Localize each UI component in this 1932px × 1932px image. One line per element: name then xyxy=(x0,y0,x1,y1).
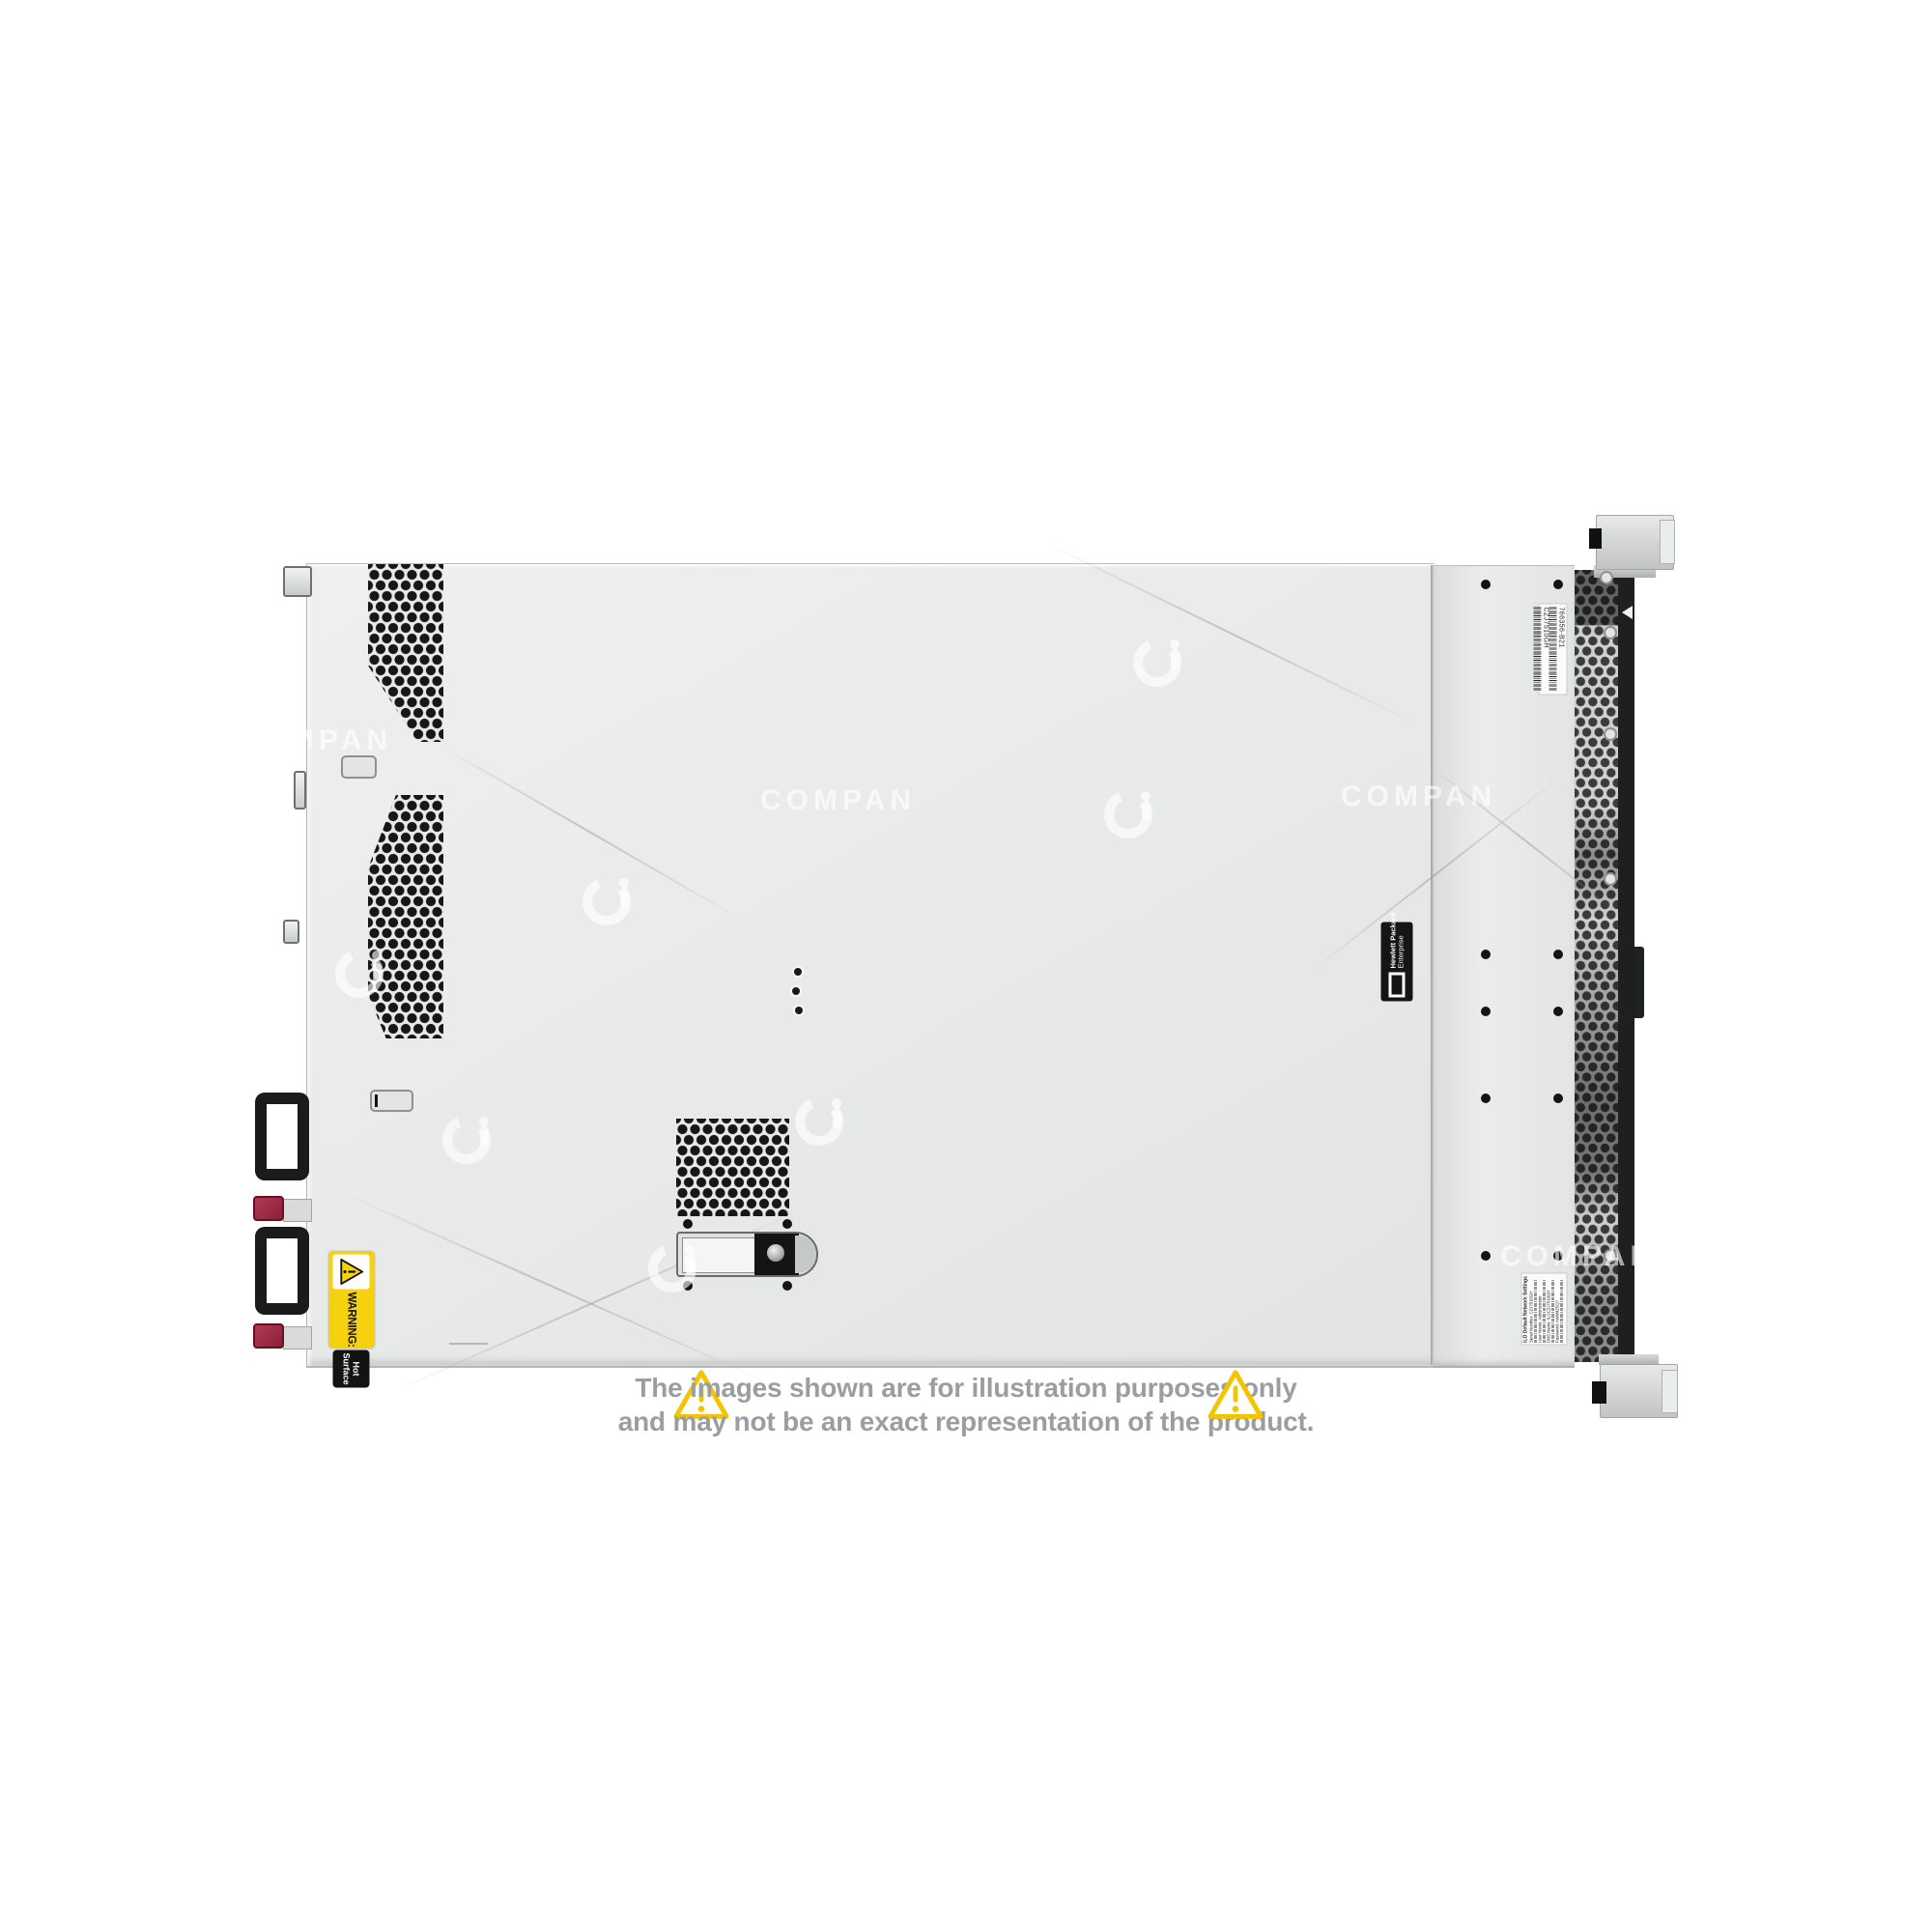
hot-surface-warning-label: WARNING: Hot Surface xyxy=(329,1252,375,1349)
ilo-username-text: User Name: Administrator xyxy=(1538,1275,1543,1343)
screw-hole xyxy=(683,1281,693,1291)
screw-hole xyxy=(683,1219,693,1229)
panel-mark xyxy=(449,1343,488,1345)
screw-hole xyxy=(1481,950,1491,959)
chassis-edge-clip xyxy=(283,566,312,597)
warning-label-title: WARNING: xyxy=(346,1293,357,1348)
rack-ear-cap xyxy=(1660,520,1675,564)
torx-screw xyxy=(1604,727,1617,741)
barcode xyxy=(1560,1281,1563,1343)
cover-clip-plate xyxy=(341,755,377,779)
screw-hole xyxy=(1553,1251,1563,1261)
screw-hole xyxy=(1553,950,1563,959)
rack-ear-cap xyxy=(1662,1370,1678,1413)
drive-eject-arrow-icon xyxy=(1622,606,1633,619)
psu-connector-tab xyxy=(283,1326,312,1350)
cover-vent-center xyxy=(676,1119,789,1216)
cover-pinhole xyxy=(795,1007,803,1014)
barcode xyxy=(1534,608,1542,692)
hpe-label-text: Hewlett Packard Enterprise xyxy=(1389,913,1405,969)
ilo-settings-label: iLO Default Network Settings Serial Numb… xyxy=(1521,1273,1568,1346)
front-bezel-tab xyxy=(1634,947,1644,1018)
server-top-cover xyxy=(306,563,1435,1368)
cover-latch-screw xyxy=(767,1244,784,1262)
serial-number-text: CZJ7510GH xyxy=(1542,608,1549,692)
screw-hole xyxy=(1481,1094,1491,1103)
psu-handle xyxy=(255,1227,309,1315)
warning-label-subtitle: Hot Surface xyxy=(333,1350,370,1388)
torx-screw xyxy=(1604,872,1617,886)
screw-hole xyxy=(782,1219,792,1229)
psu-release-latch xyxy=(253,1323,284,1349)
front-bezel-edge xyxy=(1618,572,1634,1362)
rack-ear-bracket xyxy=(1589,528,1602,549)
warning-triangle-icon xyxy=(1206,1367,1265,1428)
chassis-edge-clip xyxy=(294,771,306,810)
ilo-password-text: Password: AWM4Z5Q7 xyxy=(1555,1275,1560,1343)
cover-latch-slider xyxy=(682,1237,755,1273)
part-number-text: 766356-B21 xyxy=(1557,608,1565,692)
cover-clip-slot xyxy=(375,1094,378,1107)
hpe-brand-label: Hewlett Packard Enterprise xyxy=(1381,923,1413,1002)
hpe-logo-icon xyxy=(1389,973,1406,998)
torx-screw xyxy=(1600,571,1613,584)
ilo-label-title: iLO Default Network Settings xyxy=(1523,1275,1529,1343)
screw-hole xyxy=(1553,580,1563,589)
torx-screw xyxy=(1604,626,1617,639)
screw-hole xyxy=(1481,580,1491,589)
screw-hole xyxy=(1553,1007,1563,1016)
psu-handle xyxy=(255,1093,309,1180)
ilo-serial-text: Serial Number: CZJ7510GH xyxy=(1529,1275,1534,1343)
torx-screw xyxy=(1604,1249,1617,1263)
screw-hole xyxy=(1481,1007,1491,1016)
serial-barcode-label: 766356-B21 CZJ7510GH xyxy=(1539,604,1568,696)
drive-bay-vent-shading xyxy=(1575,570,1618,1362)
cover-pinhole xyxy=(794,968,802,976)
psu-connector-tab xyxy=(283,1199,312,1222)
barcode xyxy=(1549,608,1557,692)
screw-hole xyxy=(782,1281,792,1291)
screw-hole xyxy=(1481,1251,1491,1261)
chassis-edge-clip xyxy=(283,920,299,944)
cover-pinhole xyxy=(792,987,800,995)
psu-release-latch xyxy=(253,1196,284,1221)
warning-triangle-icon xyxy=(333,1255,370,1290)
screw-hole xyxy=(1553,1094,1563,1103)
rack-ear-bracket xyxy=(1592,1381,1606,1404)
product-photo-canvas: COMPAN COMPAN COMPAN COMPAN WARNING: Hot… xyxy=(0,0,1932,1932)
ilo-dnsname-text: DNS Name: ILOCZJ7510GH xyxy=(1547,1275,1551,1343)
